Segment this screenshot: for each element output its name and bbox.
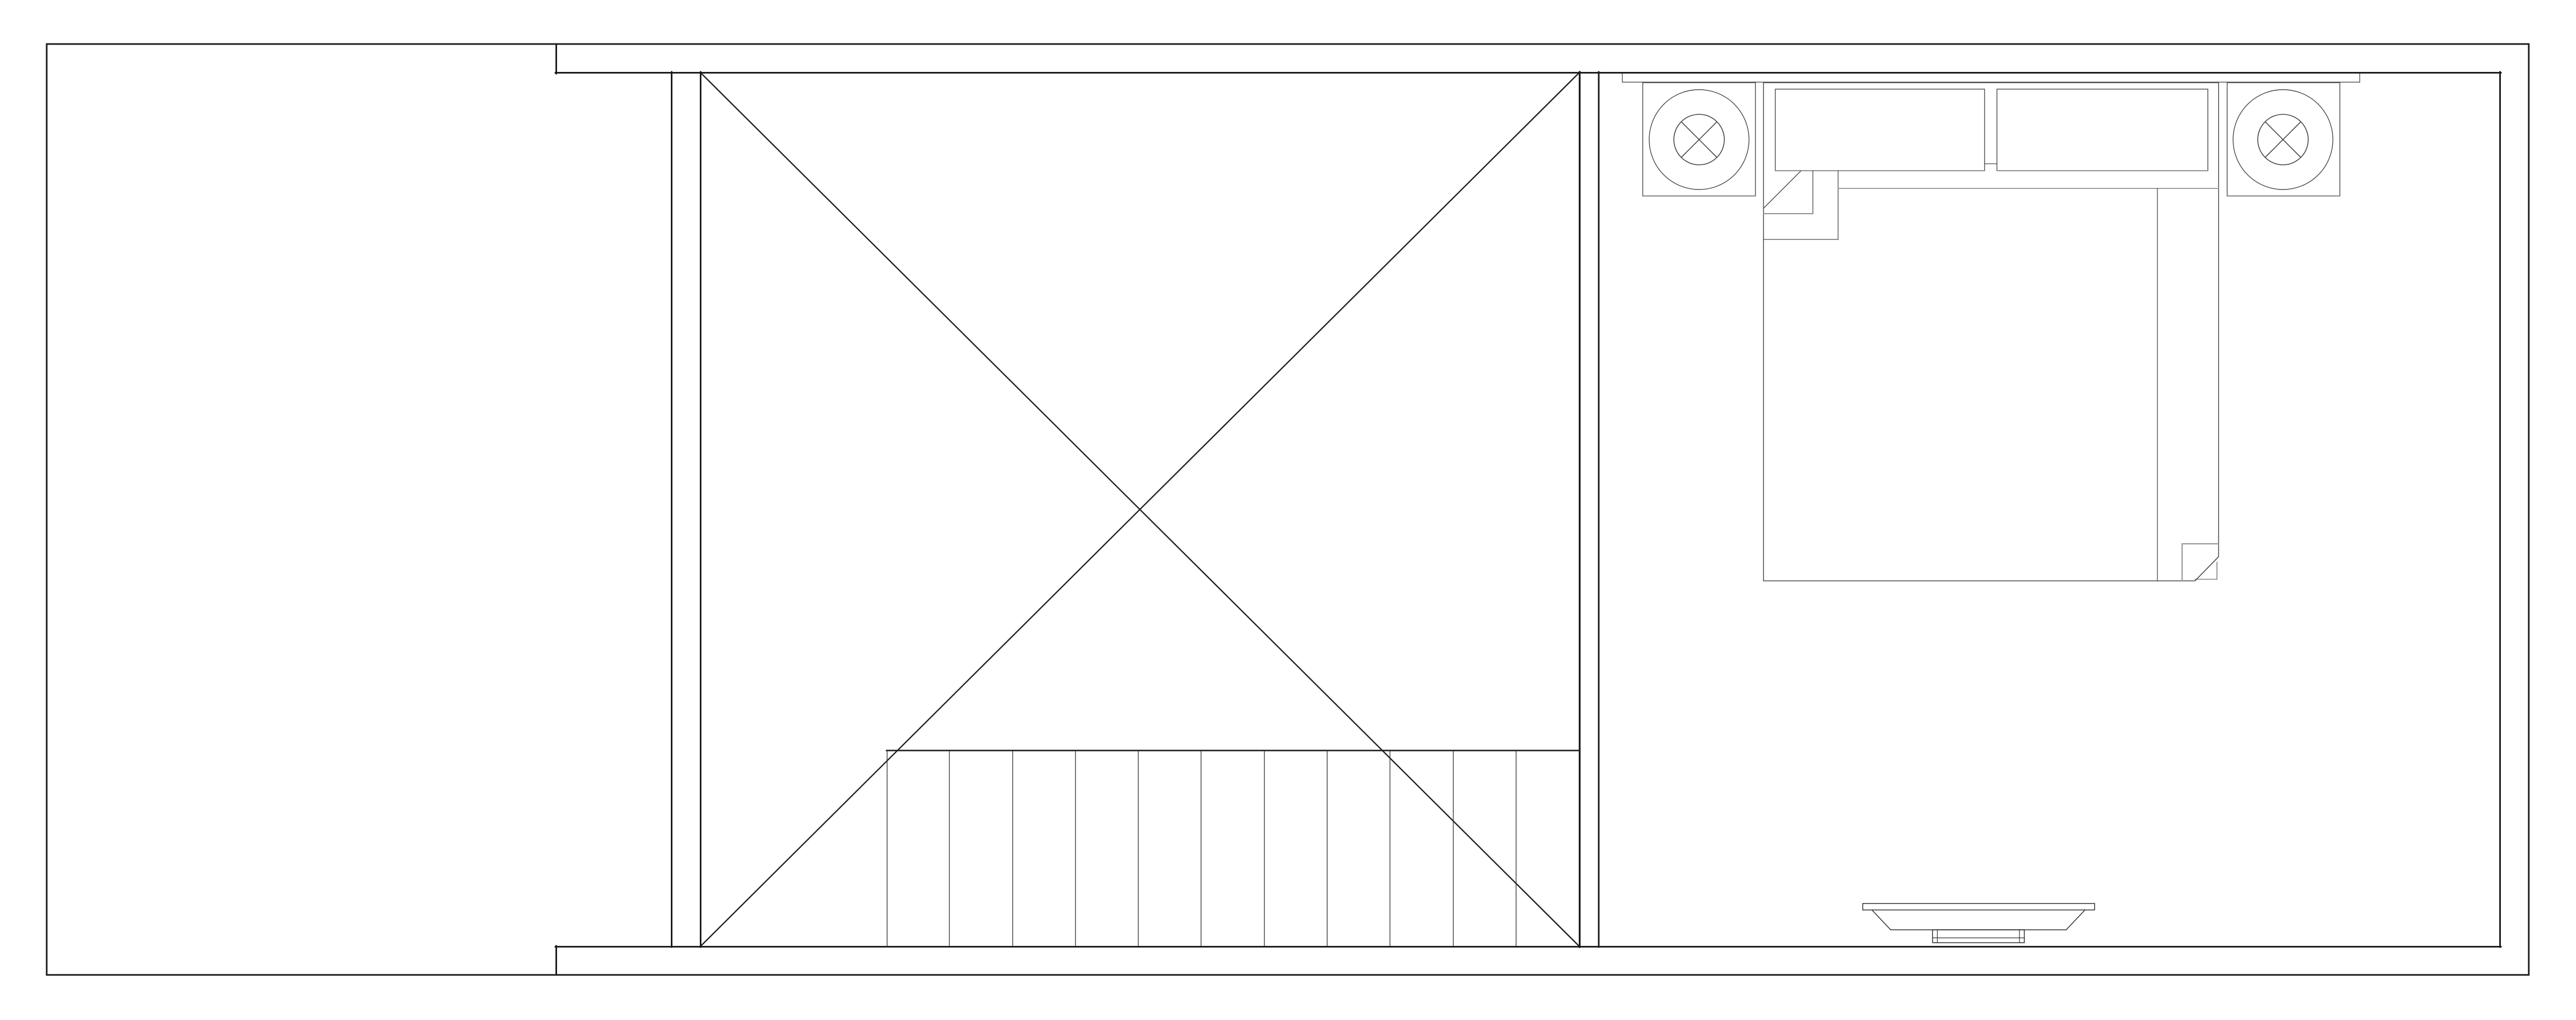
outer-wall [47,44,2529,975]
floor-plan-root [47,44,2529,975]
blanket-fold-bottom-right-diagonal [2195,557,2219,581]
tv-body-trapezoid [1872,910,2085,930]
blanket-fold-top-left-diagonal [1763,171,1801,208]
bed-mattress-outline [1763,83,2219,581]
pillow-right [1997,89,2208,171]
tv-screen-bar [1863,904,2095,910]
floor-plan-page [0,0,2576,1020]
pillow-left [1775,89,1985,171]
floor-plan-drawing [0,0,2576,1020]
tv-stand-base [1933,930,2024,943]
